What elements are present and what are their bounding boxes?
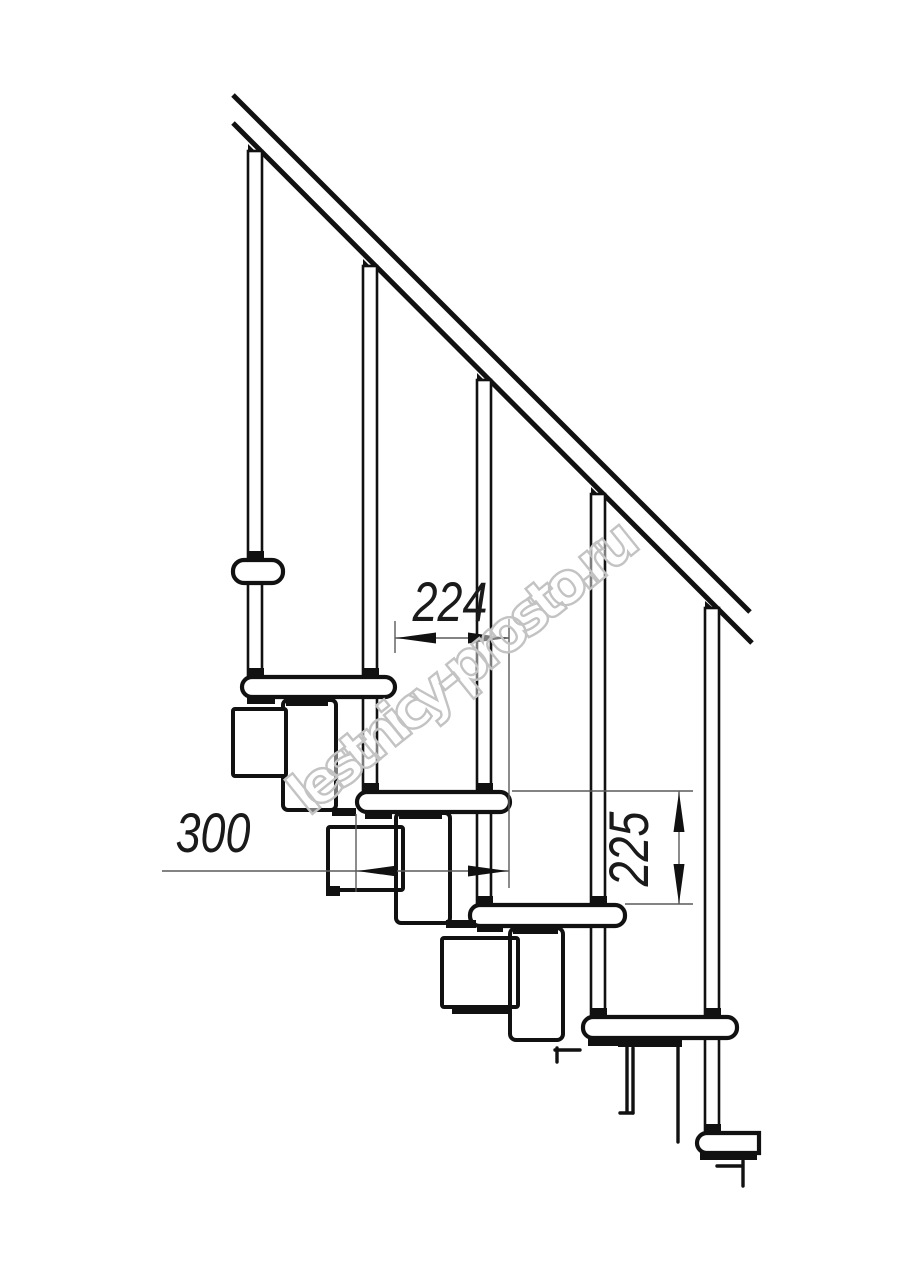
- dimension-label-300: 300: [176, 801, 251, 864]
- staircase-side-view-drawing: 224 300 225 lestnicy-prosto.ru: [0, 0, 914, 1280]
- tread-4: [583, 1017, 737, 1038]
- arrowhead-left: [396, 633, 436, 644]
- landing-edge: [233, 560, 283, 583]
- tread-2: [357, 792, 510, 812]
- handrail: [233, 95, 752, 643]
- arrowhead-down: [674, 864, 685, 904]
- module-box: [328, 827, 403, 890]
- tread-1: [242, 677, 395, 697]
- baluster: [248, 151, 262, 677]
- module-box: [442, 938, 518, 1007]
- arrowhead-up: [674, 792, 685, 832]
- tread-5: [697, 1133, 759, 1153]
- staircase-drawing-page: 224 300 225 lestnicy-prosto.ru: [0, 0, 914, 1280]
- baluster: [705, 608, 719, 1133]
- floor-bracket: [233, 709, 286, 776]
- tread-3: [470, 905, 625, 926]
- dimension-label-225: 225: [597, 811, 660, 887]
- arrowhead-left: [357, 866, 397, 877]
